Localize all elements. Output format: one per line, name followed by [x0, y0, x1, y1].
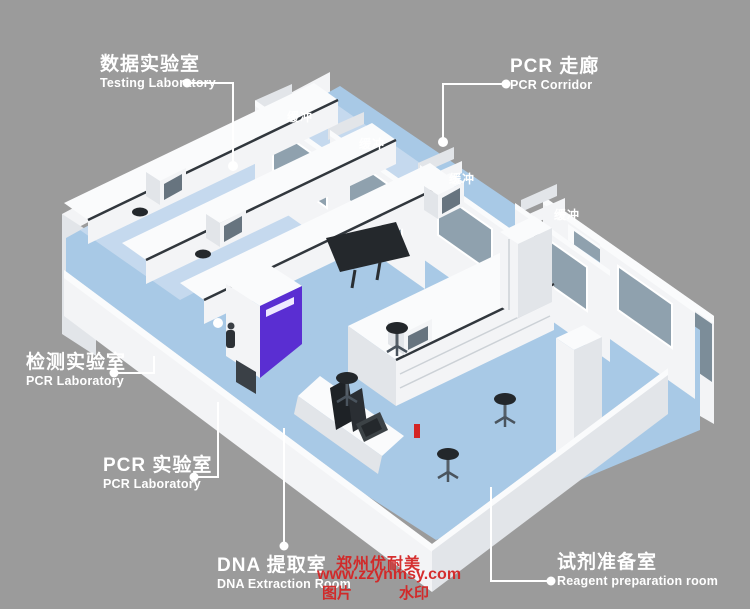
stool [195, 250, 211, 259]
stool-stem [346, 382, 349, 396]
callout-reagent-preparation: 试剂准备室 Reagent preparation room [557, 552, 718, 589]
callout-dot [547, 577, 556, 586]
callout-dot [438, 137, 448, 147]
stool-seat [437, 448, 459, 460]
callout-dot [228, 161, 238, 171]
buffer-label: 缓冲 [554, 207, 580, 222]
callout-title-zh: PCR 走廊 [510, 56, 599, 78]
watermark-tag-right: 水印 [399, 582, 429, 603]
lab-3d-illustration: 缓冲 缓冲 缓冲 缓冲 [0, 0, 750, 609]
callout-title-zh: PCR 实验室 [103, 455, 212, 477]
lab-rendering-stage: 缓冲 缓冲 缓冲 缓冲 数据实验室 Testing Laboratory PCR… [0, 0, 750, 609]
callout-title-en: Testing Laboratory [100, 76, 216, 91]
buffer-label: 缓冲 [359, 136, 385, 151]
person-body [226, 330, 235, 348]
stool-seat [494, 393, 516, 405]
buffer-label: 缓冲 [287, 109, 313, 124]
stool-seat [336, 372, 358, 384]
small-red-object [414, 424, 420, 438]
callout-pcr-corridor: PCR 走廊 PCR Corridor [510, 56, 599, 93]
connector-pcr-corridor [443, 84, 506, 138]
stool-stem [396, 332, 399, 346]
callout-testing-laboratory: 数据实验室 Testing Laboratory [100, 54, 216, 91]
callout-dot [280, 542, 289, 551]
stool-stem [447, 458, 450, 472]
callout-detection-laboratory: 检测实验室 PCR Laboratory [26, 352, 126, 389]
callout-title-en: PCR Laboratory [103, 477, 212, 492]
stool [132, 208, 148, 217]
stool-stem [504, 403, 507, 417]
person-head [228, 323, 235, 330]
stool-seat [386, 322, 408, 334]
callout-title-en: PCR Corridor [510, 78, 599, 93]
buffer-label: 缓冲 [449, 171, 475, 186]
callout-title-en: PCR Laboratory [26, 374, 126, 389]
watermark-tag-left: 图片 [322, 582, 352, 603]
callout-pcr-laboratory: PCR 实验室 PCR Laboratory [103, 455, 212, 492]
callout-title-en: Reagent preparation room [557, 574, 718, 589]
callout-title-zh: 数据实验室 [100, 54, 216, 76]
callout-title-zh: 检测实验室 [26, 352, 126, 374]
callout-title-zh: 试剂准备室 [557, 552, 718, 574]
storage-cabinet [500, 216, 552, 318]
callout-dot [213, 318, 223, 328]
